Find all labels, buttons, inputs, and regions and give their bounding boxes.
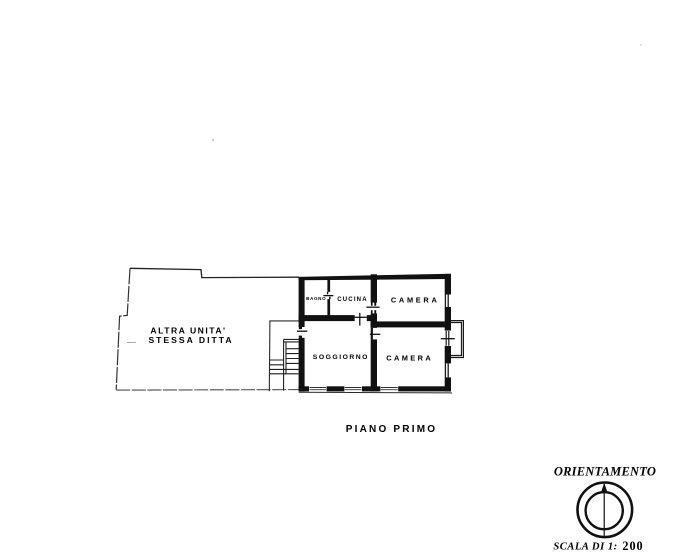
- svg-text:CAMERA: CAMERA: [386, 353, 433, 362]
- svg-text:CUCINA: CUCINA: [337, 297, 368, 303]
- svg-text:SCALA DI 1:: SCALA DI 1:: [553, 542, 617, 553]
- svg-text:SOGGIORNO: SOGGIORNO: [313, 354, 369, 361]
- svg-text:BAGNO: BAGNO: [306, 296, 326, 301]
- svg-text:PIANO PRIMO: PIANO PRIMO: [346, 424, 437, 435]
- svg-text:ORIENTAMENTO: ORIENTAMENTO: [554, 464, 656, 478]
- svg-text:CAMERA: CAMERA: [391, 296, 440, 305]
- svg-text:STESSA DITTA: STESSA DITTA: [148, 335, 233, 345]
- svg-text:200: 200: [622, 539, 643, 553]
- svg-text:ALTRA UNITA': ALTRA UNITA': [150, 325, 226, 335]
